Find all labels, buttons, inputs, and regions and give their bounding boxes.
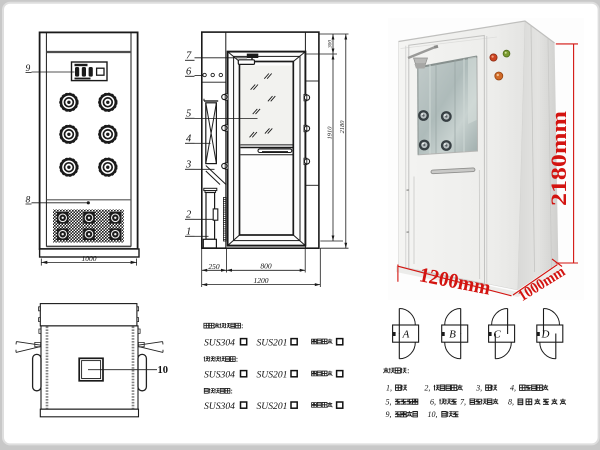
svg-text:2180mm: 2180mm [546,111,571,206]
svg-text:7,: 7, [460,398,466,407]
svg-text:10,: 10, [428,410,438,419]
svg-text:9,: 9, [386,410,392,419]
svg-text:C: C [493,328,501,340]
svg-text:D: D [541,328,550,340]
svg-text:1910: 1910 [326,126,333,140]
svg-text:10: 10 [158,365,169,376]
svg-text:5: 5 [186,109,191,120]
svg-text:800: 800 [260,261,272,270]
svg-text:SUS304: SUS304 [204,338,235,349]
svg-text:1000: 1000 [82,254,97,263]
svg-text:SUS201: SUS201 [257,338,288,349]
svg-text:3,: 3, [475,384,482,393]
svg-text:B: B [449,328,456,340]
svg-text:SUS304: SUS304 [204,370,235,381]
svg-text:6: 6 [186,67,192,78]
svg-text:2,: 2, [424,384,430,393]
svg-text:6,: 6, [430,398,436,407]
svg-text:SUS304: SUS304 [204,401,235,412]
svg-text:1,: 1, [386,384,392,393]
svg-text:A: A [402,328,410,340]
svg-text:2180: 2180 [339,120,346,134]
svg-text:5,: 5, [386,398,392,407]
svg-text:4,: 4, [510,384,516,393]
svg-text:1200: 1200 [254,276,269,285]
svg-text:8,: 8, [508,398,514,407]
svg-text:250: 250 [208,262,220,271]
svg-text:SUS201: SUS201 [257,401,288,412]
svg-text:SUS201: SUS201 [257,370,288,381]
svg-text:300: 300 [328,40,334,49]
